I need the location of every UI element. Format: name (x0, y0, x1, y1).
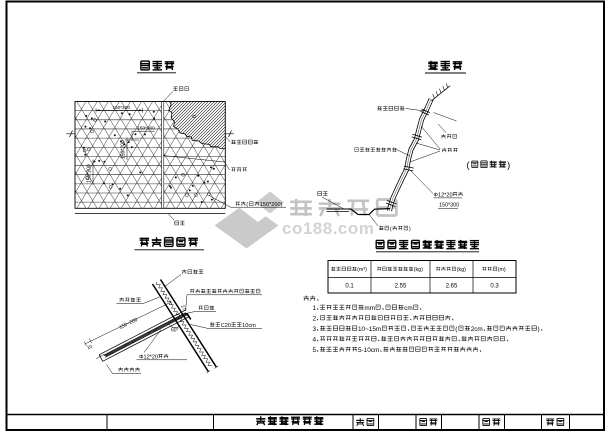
svg-text:5-10cm: 5-10cm (358, 347, 379, 354)
svg-text:2.55: 2.55 (395, 284, 407, 290)
svg-text:): ) (538, 326, 540, 333)
svg-text:(m³): (m³) (357, 267, 367, 273)
svg-text:2: 2 (313, 315, 317, 322)
svg-text:Φ12*20: Φ12*20 (139, 354, 158, 360)
svg-text:150*200: 150*200 (137, 125, 155, 130)
svg-text:150*200: 150*200 (113, 105, 131, 110)
svg-text:(: ( (467, 160, 470, 170)
svg-text:): ) (409, 226, 411, 232)
svg-text:0.3: 0.3 (490, 284, 499, 290)
svg-text:4: 4 (313, 336, 317, 343)
svg-text:150*200: 150*200 (121, 140, 127, 159)
svg-text:co188.com: co188.com (282, 219, 374, 238)
svg-text:(kg): (kg) (414, 267, 423, 273)
svg-text:0.1: 0.1 (345, 284, 354, 290)
svg-text:C20: C20 (221, 323, 231, 329)
svg-text:150*300: 150*300 (439, 203, 459, 209)
svg-text:Φ12*20: Φ12*20 (434, 192, 453, 198)
svg-text:2cm: 2cm (471, 326, 483, 333)
svg-text:mm: mm (364, 305, 375, 312)
svg-text:(m): (m) (498, 267, 506, 273)
svg-text:): ) (507, 160, 510, 170)
svg-text:(: ( (390, 226, 392, 232)
svg-text:150*200: 150*200 (87, 164, 93, 183)
svg-text:(kg): (kg) (457, 267, 466, 273)
svg-text:3: 3 (313, 326, 317, 333)
svg-text:10cm: 10cm (242, 323, 256, 329)
svg-text:1: 1 (313, 305, 317, 312)
svg-text:cm: cm (404, 305, 413, 312)
svg-text:2.65: 2.65 (446, 284, 458, 290)
svg-text:5: 5 (313, 347, 317, 354)
svg-text:60°: 60° (171, 328, 179, 334)
svg-text:10~15m: 10~15m (358, 326, 381, 333)
